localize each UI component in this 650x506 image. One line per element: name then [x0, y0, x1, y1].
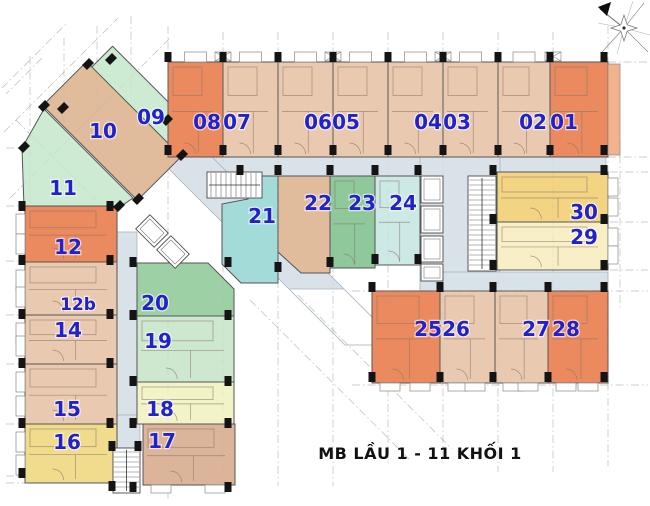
column	[437, 372, 444, 382]
balcony	[16, 214, 25, 234]
floor-plan-svg: 09101108070605040302011212b1415162019181…	[0, 0, 650, 506]
column	[19, 418, 26, 428]
column	[19, 468, 26, 478]
column	[19, 309, 26, 319]
balcony	[16, 234, 25, 254]
column	[490, 165, 497, 175]
column	[330, 145, 337, 155]
column	[440, 145, 447, 155]
column	[275, 165, 282, 175]
column	[275, 52, 282, 62]
unit-23-shape	[330, 176, 375, 268]
unit-26-label: 26	[442, 317, 470, 341]
unit-14-label: 14	[54, 318, 82, 342]
unit-29-label: 29	[570, 225, 598, 249]
balcony	[608, 198, 618, 216]
unit-09-label: 09	[137, 105, 165, 129]
column	[327, 257, 334, 267]
column	[327, 165, 334, 175]
column	[130, 482, 137, 492]
column	[385, 145, 392, 155]
balcony	[578, 383, 598, 391]
unit-02-label: 02	[519, 110, 547, 134]
unit-04-label: 04	[414, 110, 442, 134]
balcony	[513, 52, 535, 62]
unit-22-label: 22	[304, 191, 332, 215]
column	[107, 358, 114, 368]
balcony	[608, 228, 618, 246]
column	[107, 418, 114, 428]
column	[107, 309, 114, 319]
column	[545, 372, 552, 382]
unit-11-label: 11	[49, 176, 77, 200]
column	[437, 282, 444, 292]
column	[369, 282, 376, 292]
column	[545, 282, 552, 292]
column	[19, 358, 26, 368]
column	[490, 260, 497, 270]
column	[601, 214, 608, 224]
column	[372, 165, 379, 175]
unit-05-label: 05	[332, 110, 360, 134]
balcony	[16, 432, 25, 452]
unit-10-label: 10	[89, 119, 117, 143]
column	[601, 260, 608, 270]
unit-16-label: 16	[53, 430, 81, 454]
column	[225, 418, 232, 428]
balcony	[405, 52, 427, 62]
column	[440, 52, 447, 62]
column	[547, 145, 554, 155]
floor-plan-canvas: 09101108070605040302011212b1415162019181…	[0, 0, 650, 506]
column	[220, 145, 227, 155]
balcony	[16, 372, 25, 392]
unit-21-label: 21	[248, 204, 276, 228]
unit-19-label: 19	[144, 329, 172, 353]
column	[275, 145, 282, 155]
unit-30-label: 30	[570, 200, 598, 224]
column	[130, 310, 137, 320]
column	[490, 282, 497, 292]
plan-title: MB LẦU 1 - 11 KHỐI 1	[318, 442, 522, 463]
column	[19, 255, 26, 265]
column	[601, 52, 608, 62]
balcony	[16, 396, 25, 416]
unit-08-label: 08	[193, 110, 221, 134]
column	[601, 165, 608, 175]
unit-12b-label: 12b	[60, 295, 96, 315]
unit-27-label: 27	[522, 317, 550, 341]
unit-06-label: 06	[304, 110, 332, 134]
unit-01-label: 01	[550, 110, 578, 134]
unit-25-label: 25	[414, 317, 442, 341]
column	[547, 52, 554, 62]
balcony	[205, 485, 225, 493]
balcony	[295, 52, 317, 62]
column	[237, 165, 244, 175]
column	[415, 254, 422, 264]
balcony	[518, 383, 538, 391]
unit-07-label: 07	[223, 110, 251, 134]
column	[372, 254, 379, 264]
column	[275, 262, 282, 272]
balcony	[350, 52, 372, 62]
column	[107, 255, 114, 265]
column	[601, 282, 608, 292]
column	[165, 52, 172, 62]
column	[225, 310, 232, 320]
column	[107, 201, 114, 211]
column	[130, 257, 137, 267]
balcony	[608, 178, 618, 196]
column	[109, 481, 116, 491]
unit-23-label: 23	[348, 191, 376, 215]
column	[601, 372, 608, 382]
column	[225, 376, 232, 386]
unit-15-label: 15	[53, 397, 81, 421]
column	[369, 372, 376, 382]
unit-18-label: 18	[146, 397, 174, 421]
balcony	[465, 383, 485, 391]
corridor-zone	[420, 272, 608, 291]
unit-03-label: 03	[443, 110, 471, 134]
unit-28-label: 28	[552, 317, 580, 341]
column	[490, 214, 497, 224]
column	[220, 52, 227, 62]
column	[330, 52, 337, 62]
column	[495, 145, 502, 155]
unit-24-label: 24	[389, 191, 417, 215]
balcony	[16, 336, 25, 356]
unit-20-label: 20	[141, 291, 169, 315]
column	[495, 52, 502, 62]
balcony	[16, 287, 25, 307]
unit-12-label: 12	[54, 235, 82, 259]
column	[415, 165, 422, 175]
column	[385, 52, 392, 62]
column	[130, 376, 137, 386]
column	[490, 372, 497, 382]
balcony	[460, 52, 482, 62]
column	[225, 257, 232, 267]
balcony	[380, 383, 400, 391]
balcony	[556, 383, 576, 391]
column	[601, 145, 608, 155]
balcony	[608, 246, 618, 264]
unit-17-label: 17	[148, 429, 176, 453]
unit-24-shape	[375, 176, 420, 265]
column	[109, 441, 116, 451]
column	[19, 201, 26, 211]
balcony	[151, 485, 171, 493]
balcony	[185, 52, 207, 62]
balcony	[240, 52, 262, 62]
column	[130, 418, 137, 428]
column	[225, 482, 232, 492]
balcony	[410, 383, 430, 391]
column	[135, 441, 142, 451]
balcony-strip	[608, 64, 620, 155]
column	[165, 145, 172, 155]
